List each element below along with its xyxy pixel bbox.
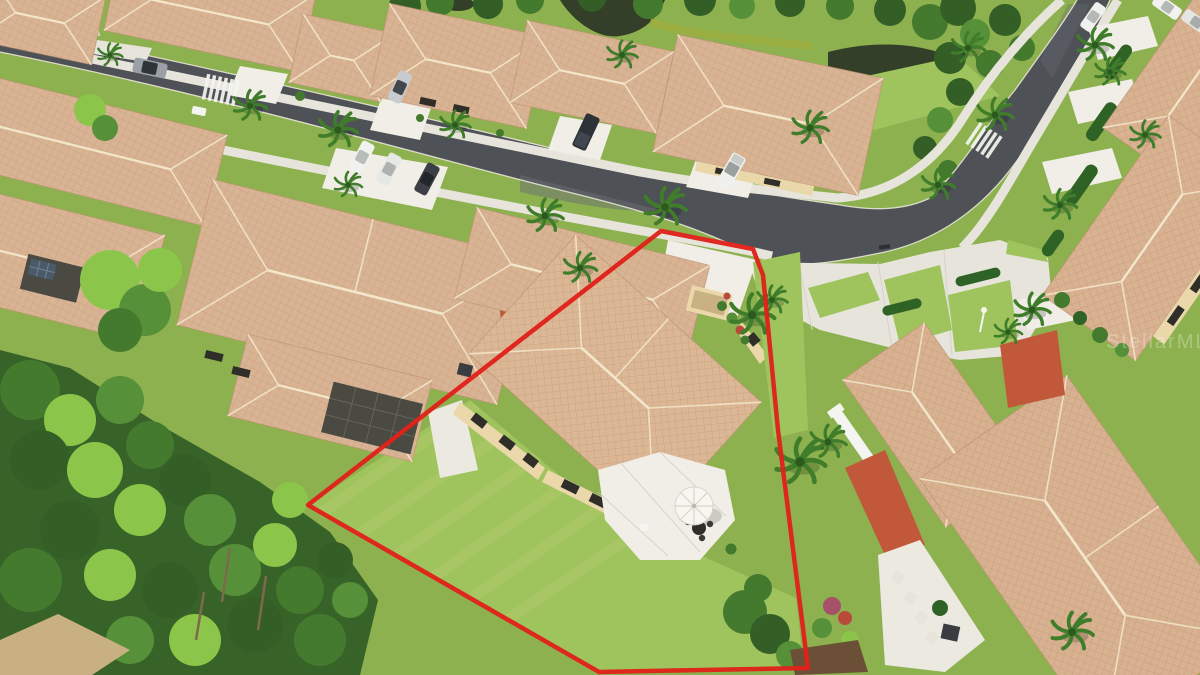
patio-umbrella [675,487,713,525]
patio-chair [640,524,648,531]
aerial-photo: StellarMLS [0,0,1200,675]
watermark-text: StellarMLS [1106,331,1200,353]
potted-plant [726,544,737,555]
